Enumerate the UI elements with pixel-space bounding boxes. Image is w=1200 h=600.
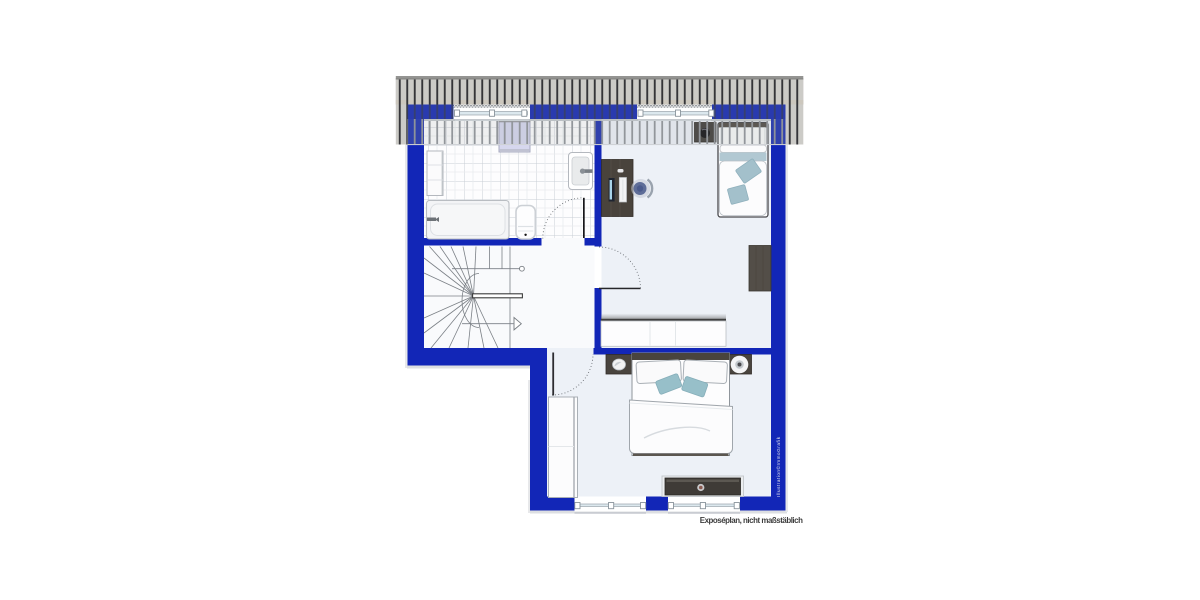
svg-text:Illustration©ImmoGrafik: Illustration©ImmoGrafik <box>775 436 781 497</box>
svg-text:Exposéplan, nicht maßstäblich: Exposéplan, nicht maßstäblich <box>700 516 803 525</box>
